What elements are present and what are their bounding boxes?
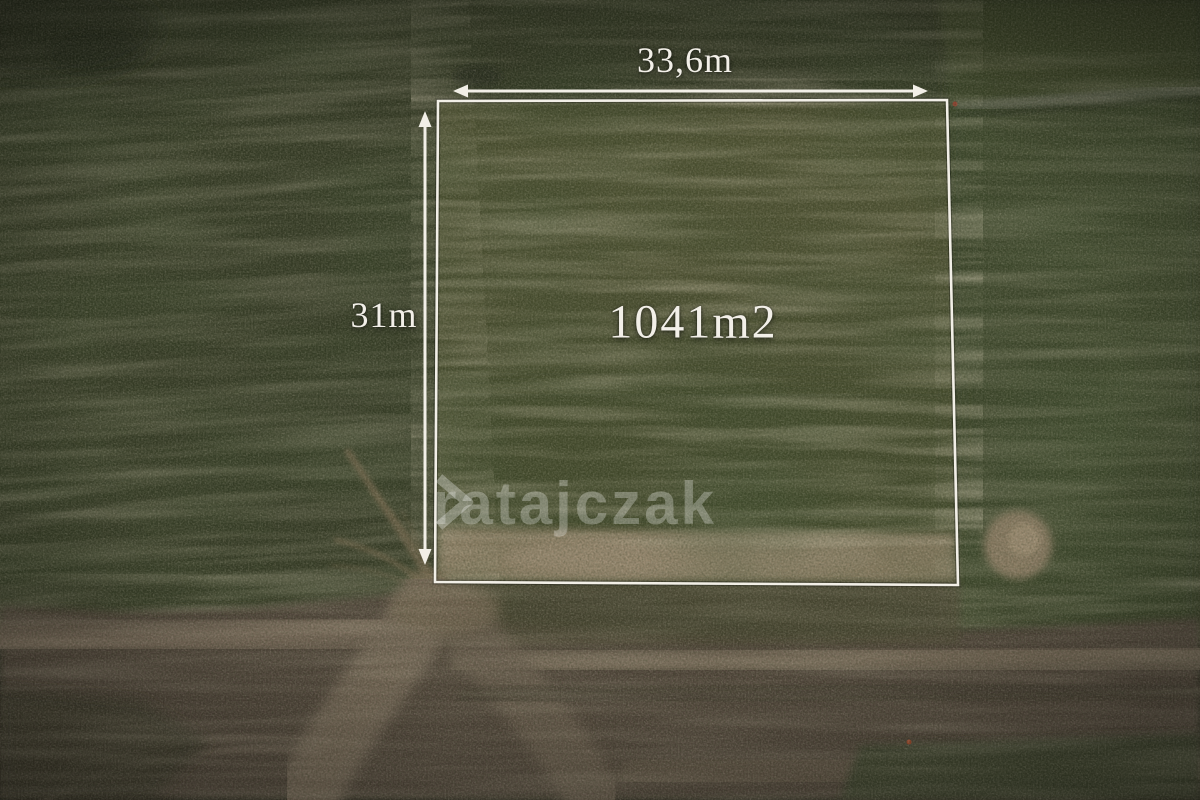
- aerial-photo: 33,6m 31m 1041m2 ratajczak: [0, 0, 1200, 800]
- vignette: [0, 0, 1200, 800]
- photo-scene: [0, 0, 1200, 800]
